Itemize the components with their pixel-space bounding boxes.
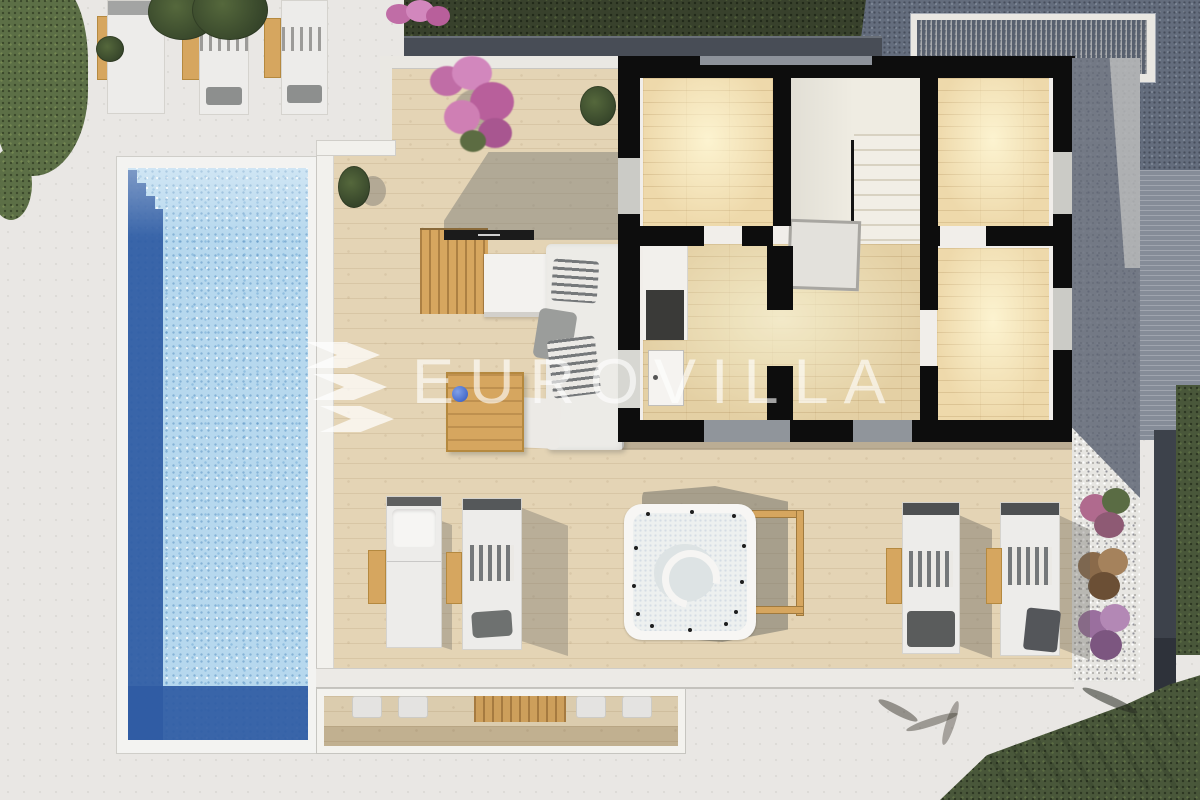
glass-door-threshold [853,420,912,442]
room-bedroom-1 [643,78,773,226]
lounger-towel [1008,547,1052,585]
sun-lounger [902,502,960,654]
pool-highlight [128,168,308,238]
lounger-towel [470,545,514,581]
lower-terrace-deck [324,696,678,746]
pool-step-shadow [146,196,155,740]
lounger-bag [471,610,513,639]
lounger-towel [909,551,953,587]
lounger-frame-bar [1001,503,1059,515]
window-top [700,56,872,65]
potted-plant [96,36,124,62]
interior-wall [767,246,793,310]
watermark-logo [306,342,394,436]
flower-leaves [1102,488,1130,514]
watermark-text: EUROVILLA [412,346,901,418]
grass-band-top [404,0,882,40]
lounger-frame-bar [387,497,441,506]
lounger-seam [387,561,441,562]
sun-lounger [462,498,522,650]
bougainvillea-cluster [430,56,534,160]
window-left [618,158,640,214]
flower-cluster-top [386,0,450,28]
dining-chair [352,696,382,718]
interior-wall [920,56,938,310]
flower [444,100,480,134]
pool-step-shadow [137,183,146,740]
side-table [886,548,902,604]
interior-wall [986,226,1075,246]
stair-steps [854,134,920,256]
dining-chair [622,696,652,718]
flower [426,6,450,26]
lounger-footrest [907,611,955,647]
flower [1100,604,1130,632]
lounger-headrest [392,509,436,547]
chevron-icon [313,374,387,400]
flower [1094,512,1124,538]
sofa-pillow [551,258,600,303]
dining-chair [398,696,428,718]
bush [580,86,616,126]
building-bottom-shadow [622,442,1073,450]
chevron-icon [306,342,380,368]
hot-tub [624,504,756,640]
terrace-shade [324,726,678,746]
glass-door-threshold [704,420,790,442]
floor-plan-render: EUROVILLA [0,0,1200,800]
tree-canopy [148,0,268,46]
interior-wall [920,366,938,442]
grass-shadow-streaks [980,700,1180,790]
shrub [1088,572,1120,600]
flower-leaves [460,130,486,152]
grass-far-right [1176,385,1200,655]
pergola-shadow [282,27,327,51]
interior-wall [773,56,791,226]
pool-deep-end [128,686,308,740]
lower-terrace [316,688,686,754]
dining-chair [576,696,606,718]
dining-table [787,219,861,291]
tub-wood-frame [752,606,804,614]
kitchen-cooktop [646,290,684,340]
side-table [446,552,462,604]
deck-edge-bottom [316,668,1074,689]
interior-wall [618,226,704,246]
lounger-frame-bar [903,503,959,515]
hot-tub-jets [646,512,650,516]
lounger-shadow [522,508,568,656]
plant-shadow [939,700,962,747]
grill-counter-edge [444,230,534,240]
pool-step-shadow [128,170,137,740]
pool-step-shadow [155,209,163,740]
flower [1090,630,1122,660]
plant-shadow [876,696,919,725]
deck-edge-top [316,140,396,156]
sun-lounger [281,0,328,115]
side-table [368,550,386,604]
fence-right [1154,430,1176,696]
room-bedroom-3 [937,248,1049,420]
tub-wood-frame [796,510,804,616]
bush [338,166,370,208]
room-bedroom-2 [937,78,1049,226]
lounger-pillow [206,87,242,105]
interior-wall [742,226,773,246]
interior-wall [920,226,940,246]
chevron-icon [320,406,394,432]
lounger-frame-bar [463,499,521,510]
outdoor-kitchen-slat-panel [420,228,488,314]
lounger-footrest [1023,607,1061,652]
sun-lounger [386,496,442,648]
grill-handle [478,234,500,236]
side-table [986,548,1002,604]
lounger-pillow [287,85,322,103]
dining-table-outdoor [474,696,566,722]
sun-lounger [1000,502,1060,656]
